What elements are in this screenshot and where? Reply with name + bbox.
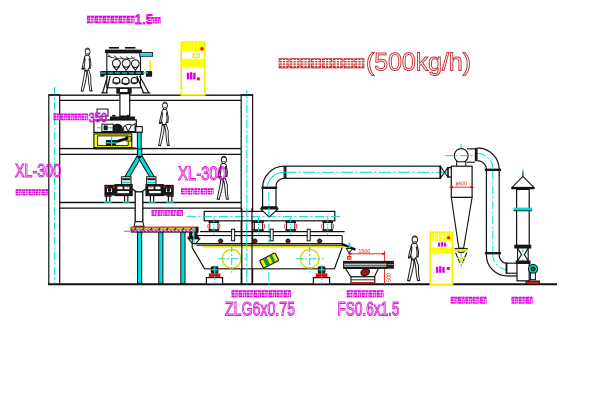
svg-text:1500: 1500 [358, 249, 370, 255]
svg-text:(500kg/h): (500kg/h) [366, 49, 471, 77]
svg-text:FS0.6x1.5: FS0.6x1.5 [338, 298, 400, 320]
svg-text:XL-300: XL-300 [15, 160, 61, 181]
svg-text:XL-300: XL-300 [178, 164, 226, 185]
svg-text:ϕ600: ϕ600 [456, 182, 467, 188]
svg-text:350: 350 [89, 111, 108, 125]
svg-text:ZLG6x0.75: ZLG6x0.75 [225, 298, 295, 320]
svg-text:500: 500 [387, 273, 393, 282]
